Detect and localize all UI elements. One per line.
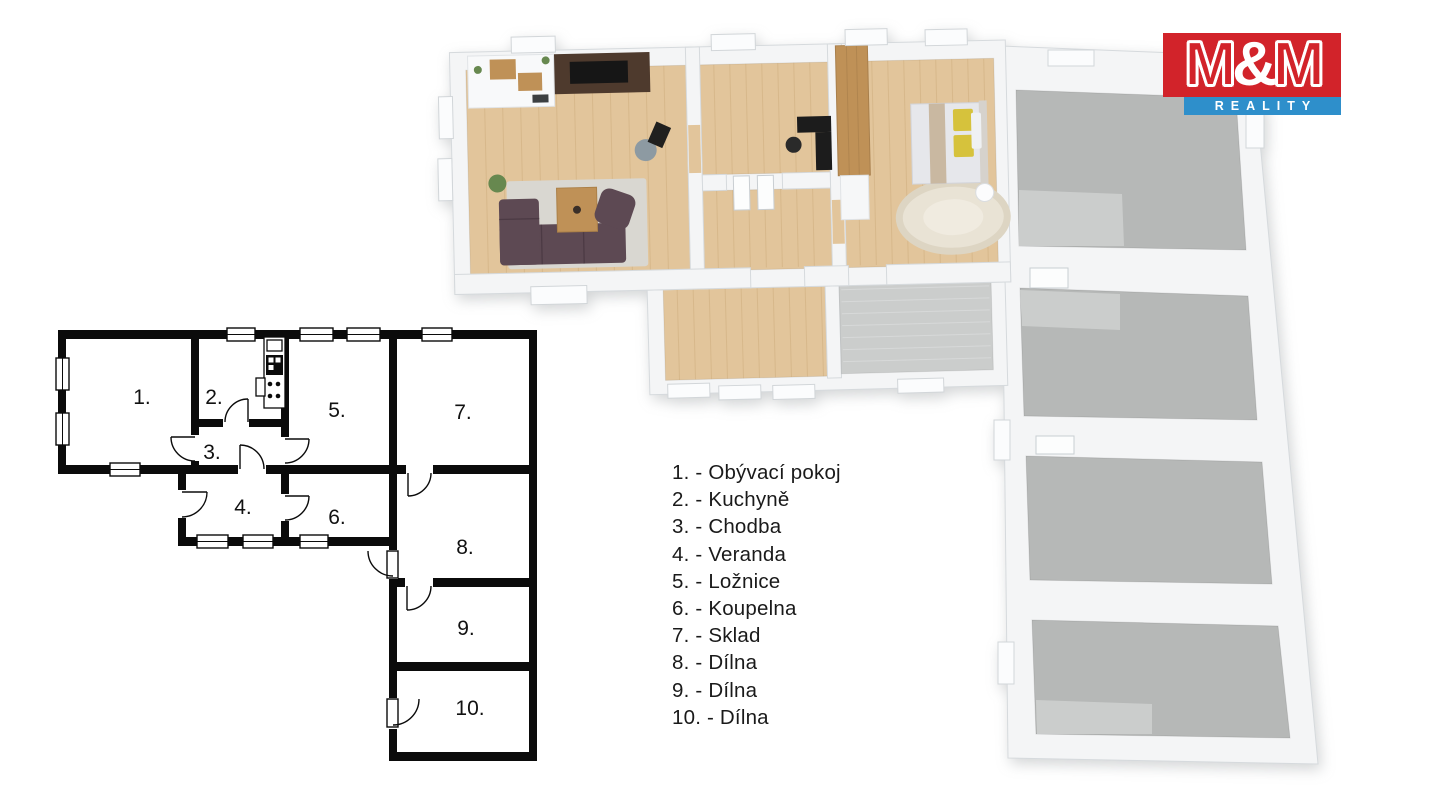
room-label-8: 8. (456, 536, 474, 559)
logo-reality-bar: REALITY (1184, 97, 1341, 115)
legend-item: 1. - Obývací pokoj (672, 459, 841, 486)
room-label-10: 10. (455, 697, 484, 720)
logo-ampersand: & (1232, 34, 1272, 96)
legend-item: 5. - Ložnice (672, 568, 841, 595)
room-label-1: 1. (133, 386, 151, 409)
legend-item: 2. - Kuchyně (672, 486, 841, 513)
legend-item: 7. - Sklad (672, 622, 841, 649)
legend-item: 10. - Dílna (672, 704, 841, 731)
room-label-3: 3. (203, 441, 221, 464)
mm-reality-logo: M & M REALITY (1163, 33, 1341, 115)
legend-item: 8. - Dílna (672, 649, 841, 676)
room-label-9: 9. (457, 617, 475, 640)
legend-item: 9. - Dílna (672, 677, 841, 704)
logo-letter-m: M (1273, 34, 1320, 96)
logo-mm-box: M & M (1163, 33, 1341, 97)
room-legend: 1. - Obývací pokoj 2. - Kuchyně 3. - Cho… (672, 459, 841, 731)
legend-item: 3. - Chodba (672, 513, 841, 540)
room-label-4: 4. (234, 496, 252, 519)
real-estate-floorplan-image: 1. 2. 3. 4. 5. 6. 7. 8. 9. 10. 1. - Obýv… (0, 0, 1440, 810)
room-label-7: 7. (454, 401, 472, 424)
legend-item: 6. - Koupelna (672, 595, 841, 622)
logo-letter-m: M (1184, 34, 1231, 96)
legend-item: 4. - Veranda (672, 541, 841, 568)
room-label-5: 5. (328, 399, 346, 422)
2d-kitchen-unit (256, 337, 285, 408)
room-label-6: 6. (328, 506, 346, 529)
room-label-2: 2. (205, 386, 223, 409)
